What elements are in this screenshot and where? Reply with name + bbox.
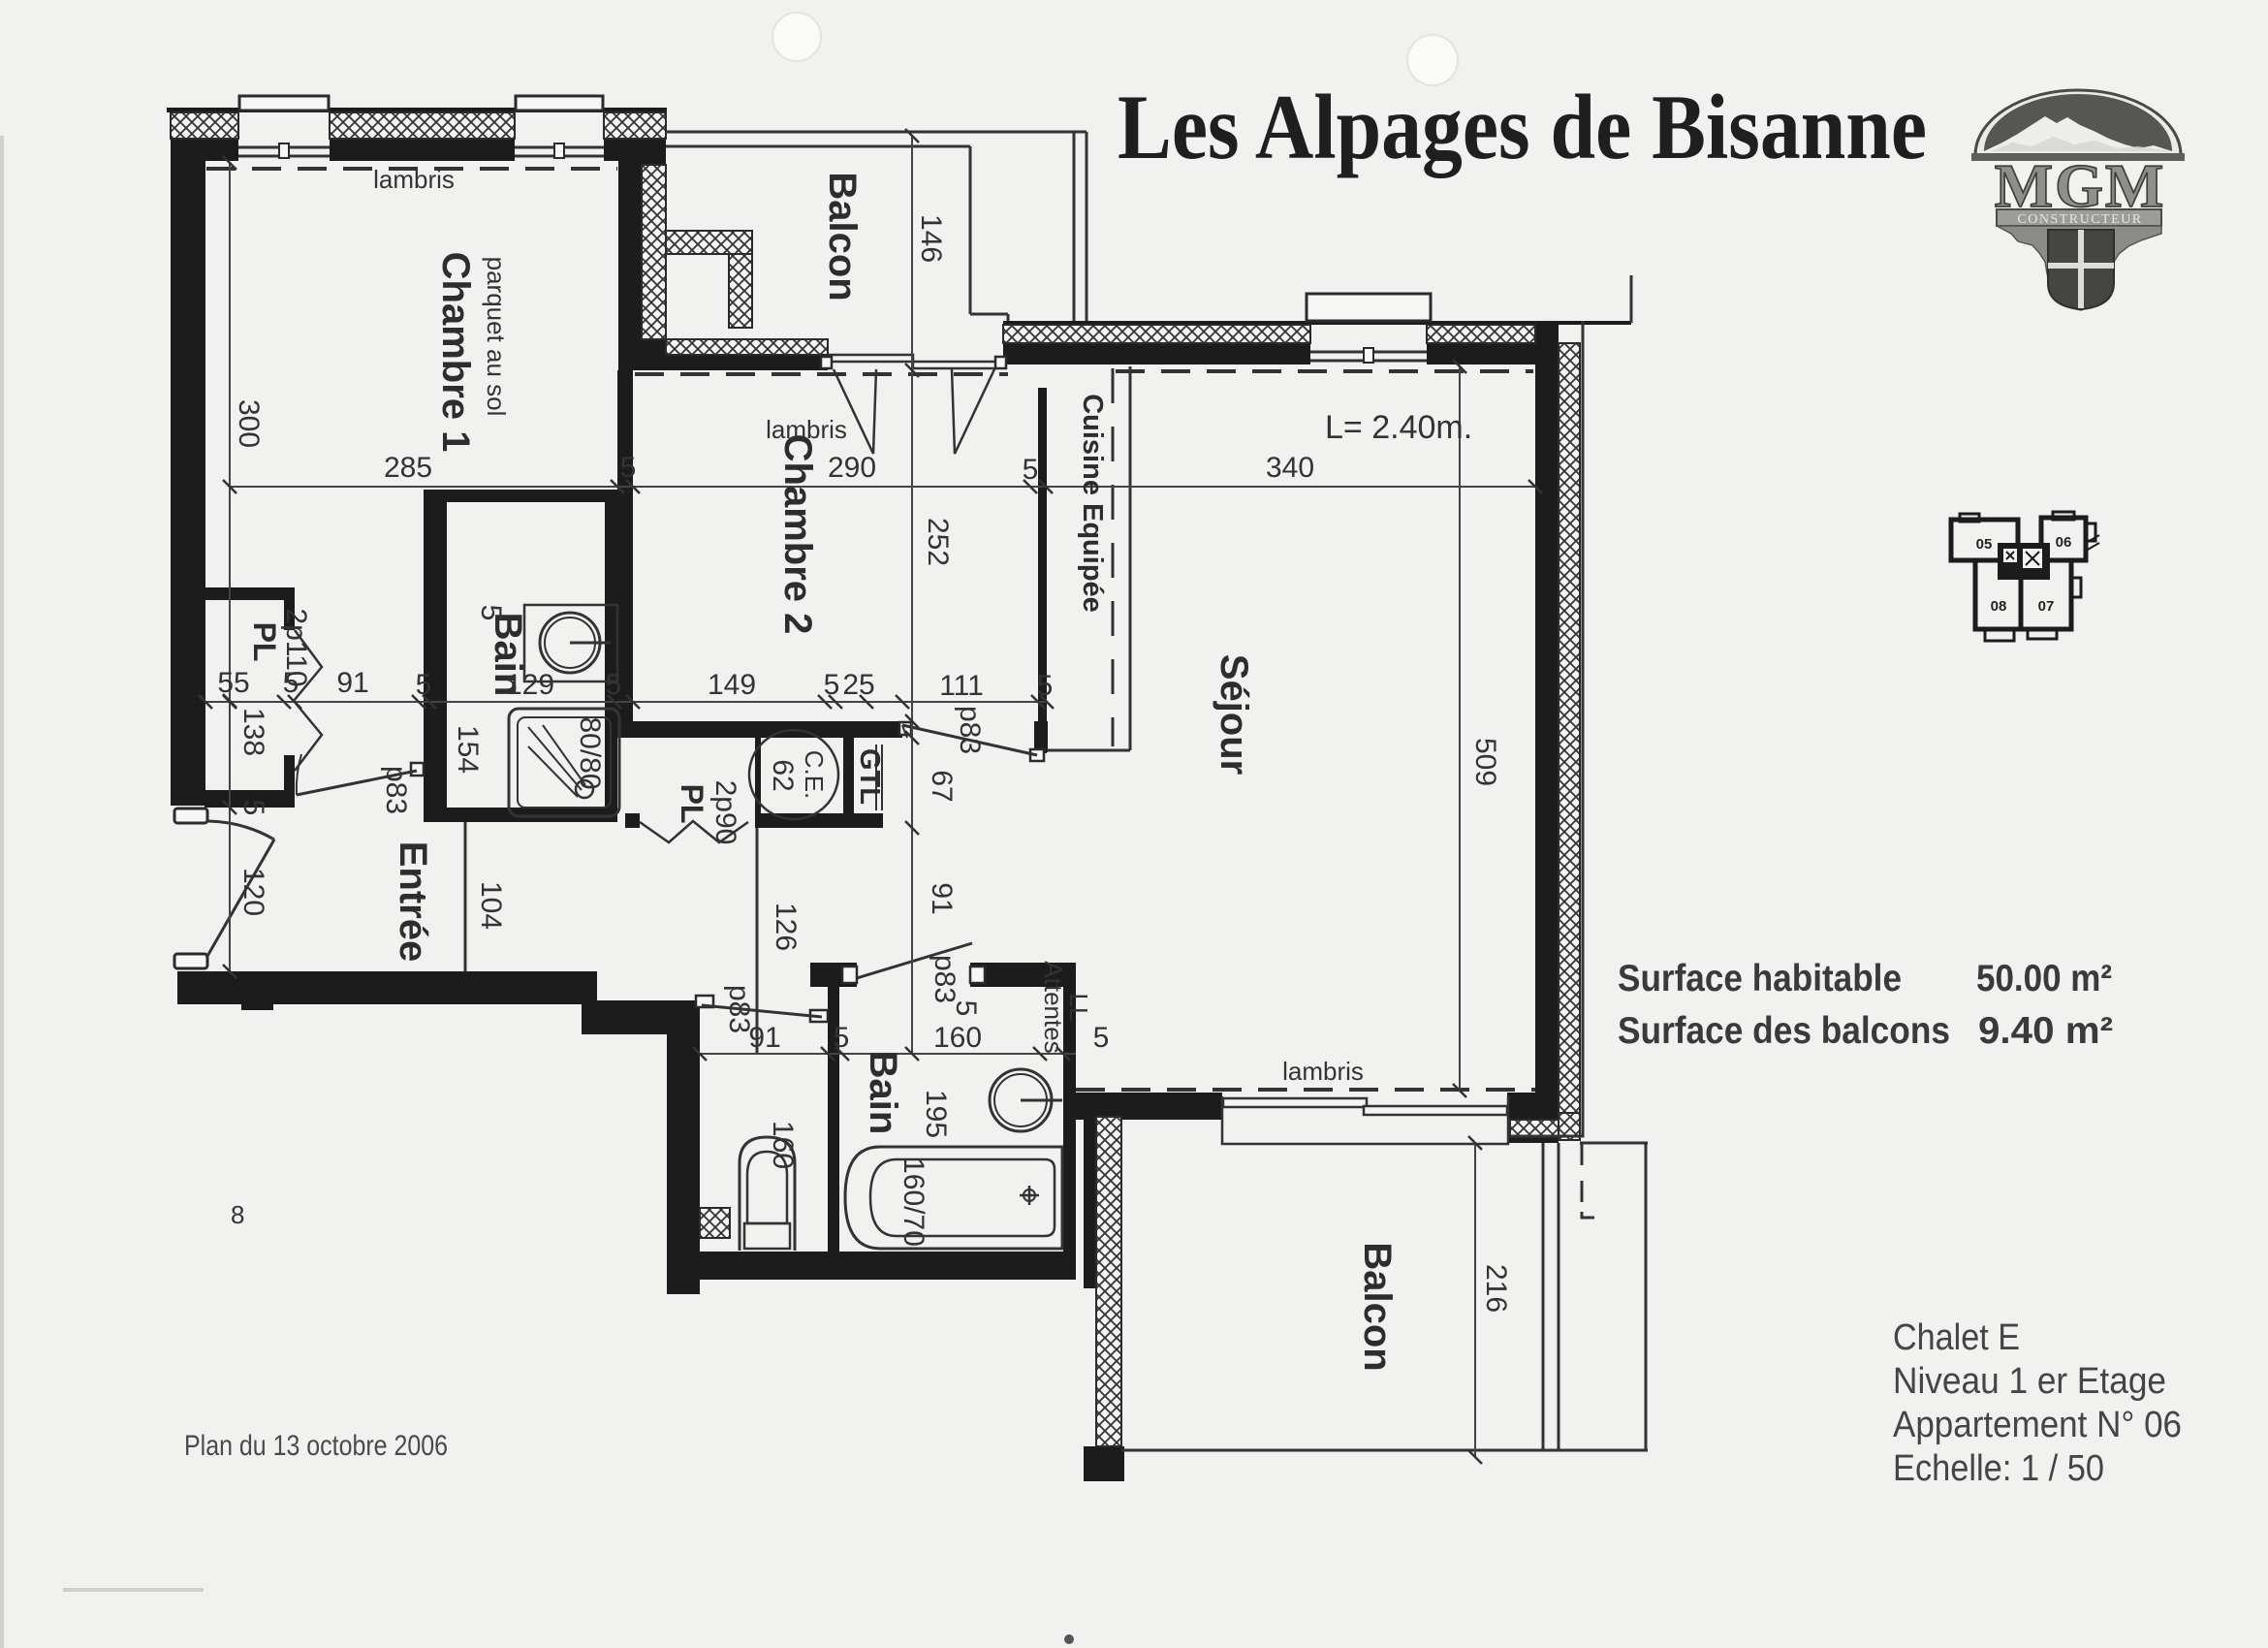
svg-text:Chalet E: Chalet E: [1893, 1317, 2020, 1358]
svg-text:06: 06: [2056, 534, 2072, 551]
svg-text:Surface des balcons: Surface des balcons: [1618, 1010, 1950, 1052]
svg-text:Les Alpages de Bisanne: Les Alpages de Bisanne: [1118, 76, 1927, 178]
svg-text:80/80: 80/80: [574, 716, 606, 789]
svg-text:5: 5: [606, 669, 622, 701]
svg-text:154: 154: [452, 725, 484, 774]
svg-text:216: 216: [1480, 1264, 1512, 1313]
svg-text:8: 8: [231, 1200, 244, 1229]
svg-text:Balcon: Balcon: [821, 172, 864, 301]
svg-text:5: 5: [834, 1022, 850, 1054]
svg-text:Entrée: Entrée: [392, 841, 434, 963]
svg-text:5: 5: [1023, 454, 1039, 486]
svg-text:Plan du 13 octobre 2006: Plan du 13 octobre 2006: [184, 1430, 448, 1462]
svg-text:Attentes: Attentes: [1039, 961, 1068, 1053]
svg-text:p83: p83: [954, 706, 986, 754]
svg-text:50.00 m²: 50.00 m²: [1976, 958, 2112, 999]
svg-text:5: 5: [1037, 670, 1054, 702]
svg-text:Echelle: 1 / 50: Echelle: 1 / 50: [1893, 1448, 2104, 1489]
svg-text:08: 08: [1991, 598, 2007, 615]
svg-text:5: 5: [237, 800, 269, 816]
svg-text:parquet au sol: parquet au sol: [482, 257, 511, 417]
svg-text:160/70: 160/70: [898, 1157, 929, 1247]
svg-text:Chambre 2: Chambre 2: [776, 434, 819, 635]
svg-text:05: 05: [1976, 536, 1993, 553]
svg-text:Niveau 1 er Etage: Niveau 1 er Etage: [1893, 1361, 2166, 1402]
svg-text:129: 129: [506, 669, 554, 701]
svg-text:5: 5: [475, 605, 507, 621]
svg-text:160: 160: [767, 1121, 799, 1169]
svg-text:5: 5: [416, 669, 432, 701]
svg-text:126: 126: [770, 903, 802, 951]
svg-text:Bain: Bain: [862, 1051, 904, 1135]
svg-text:91: 91: [926, 882, 958, 914]
svg-text:lambris: lambris: [1282, 1057, 1364, 1086]
svg-text:2p90: 2p90: [709, 780, 741, 845]
svg-text:5: 5: [1093, 1022, 1110, 1054]
svg-text:PL: PL: [247, 622, 282, 662]
svg-text:GTL: GTL: [854, 748, 885, 805]
svg-text:lambris: lambris: [766, 415, 847, 444]
svg-text:5: 5: [950, 1000, 982, 1017]
svg-text:91: 91: [336, 667, 368, 699]
svg-text:07: 07: [2038, 598, 2055, 615]
svg-text:146: 146: [915, 214, 947, 263]
svg-text:509: 509: [1469, 738, 1501, 786]
svg-text:p83: p83: [929, 955, 961, 1003]
svg-text:300: 300: [233, 399, 265, 448]
svg-text:9.40 m²: 9.40 m²: [1978, 1010, 2113, 1052]
svg-text:Cuisine Equipée: Cuisine Equipée: [1077, 394, 1108, 613]
svg-text:PL: PL: [675, 784, 709, 824]
svg-text:160: 160: [933, 1022, 982, 1054]
svg-text:Appartement N° 06: Appartement N° 06: [1893, 1405, 2182, 1445]
svg-text:CONSTRUCTEUR: CONSTRUCTEUR: [2017, 212, 2142, 227]
svg-text:Séjour: Séjour: [1213, 654, 1255, 775]
svg-text:67: 67: [926, 770, 958, 802]
svg-text:120: 120: [237, 868, 269, 916]
svg-text:5: 5: [283, 667, 299, 699]
svg-text:5: 5: [824, 669, 840, 701]
svg-text:104: 104: [475, 881, 507, 930]
svg-text:lambris: lambris: [373, 165, 455, 194]
svg-text:L= 2.40m.: L= 2.40m.: [1325, 409, 1472, 446]
svg-text:285: 285: [384, 452, 432, 484]
svg-text:C.E.: C.E.: [800, 750, 829, 800]
svg-text:252: 252: [922, 518, 954, 566]
svg-text:138: 138: [237, 708, 269, 756]
svg-text:Chambre 1: Chambre 1: [434, 252, 477, 453]
svg-text:5: 5: [620, 452, 637, 484]
svg-text:290: 290: [828, 452, 876, 484]
svg-text:p83: p83: [380, 766, 412, 814]
svg-text:55: 55: [217, 667, 249, 699]
svg-text:340: 340: [1266, 452, 1314, 484]
svg-text:149: 149: [708, 669, 756, 701]
svg-text:Surface habitable: Surface habitable: [1618, 958, 1902, 999]
svg-text:LL: LL: [1064, 994, 1093, 1022]
svg-text:Balcon: Balcon: [1356, 1242, 1399, 1371]
svg-text:91: 91: [748, 1022, 780, 1054]
svg-text:25: 25: [842, 669, 874, 701]
svg-text:62: 62: [767, 759, 799, 791]
svg-text:111: 111: [939, 670, 984, 702]
svg-text:195: 195: [920, 1090, 952, 1138]
